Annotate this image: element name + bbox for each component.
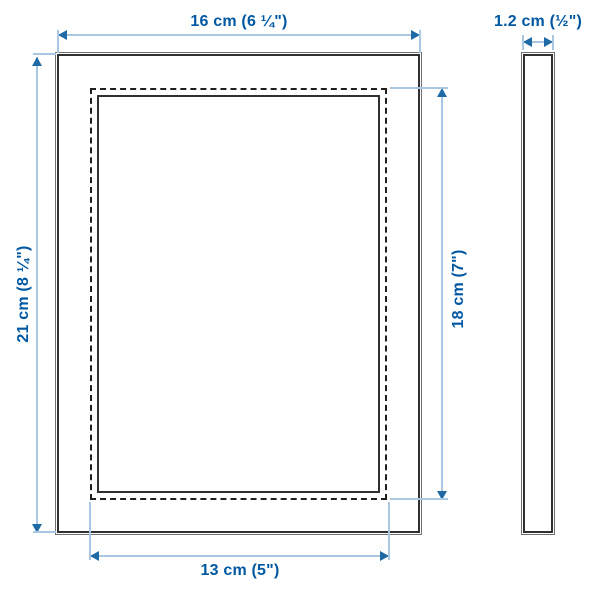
- dimension-line: [90, 555, 389, 557]
- dimension-opening-height-label: 18 cm (7"): [450, 199, 468, 379]
- extension-line: [33, 531, 56, 533]
- arrowhead-up-icon: [32, 57, 42, 66]
- extension-line: [57, 30, 59, 53]
- extension-line: [33, 53, 56, 55]
- dimension-opening-width-label: 13 cm (5"): [140, 562, 340, 580]
- extension-line: [419, 30, 421, 53]
- extension-line: [522, 35, 524, 50]
- extension-line: [552, 35, 554, 50]
- arrowhead-left-icon: [523, 37, 532, 47]
- dimension-depth-label: 1.2 cm (½"): [458, 13, 600, 31]
- dimension-outer-height-label: 21 cm (8 ¼"): [15, 184, 33, 404]
- frame-opening-outline: [97, 95, 380, 493]
- arrowhead-up-icon: [437, 88, 447, 97]
- product-dimension-diagram: 16 cm (6 ¼") 21 cm (8 ¼") 18 cm (7") 13 …: [0, 0, 600, 600]
- dimension-outer-width-label: 16 cm (6 ¼"): [139, 13, 339, 31]
- arrowhead-left-icon: [90, 551, 99, 561]
- extension-line: [89, 502, 91, 560]
- extension-line: [390, 87, 448, 89]
- dimension-line: [441, 88, 443, 500]
- extension-line: [388, 502, 390, 560]
- frame-side-view: [523, 54, 553, 533]
- dimension-line: [36, 57, 38, 533]
- arrowhead-left-icon: [58, 30, 67, 40]
- dimension-line: [58, 34, 420, 36]
- extension-line: [390, 498, 448, 500]
